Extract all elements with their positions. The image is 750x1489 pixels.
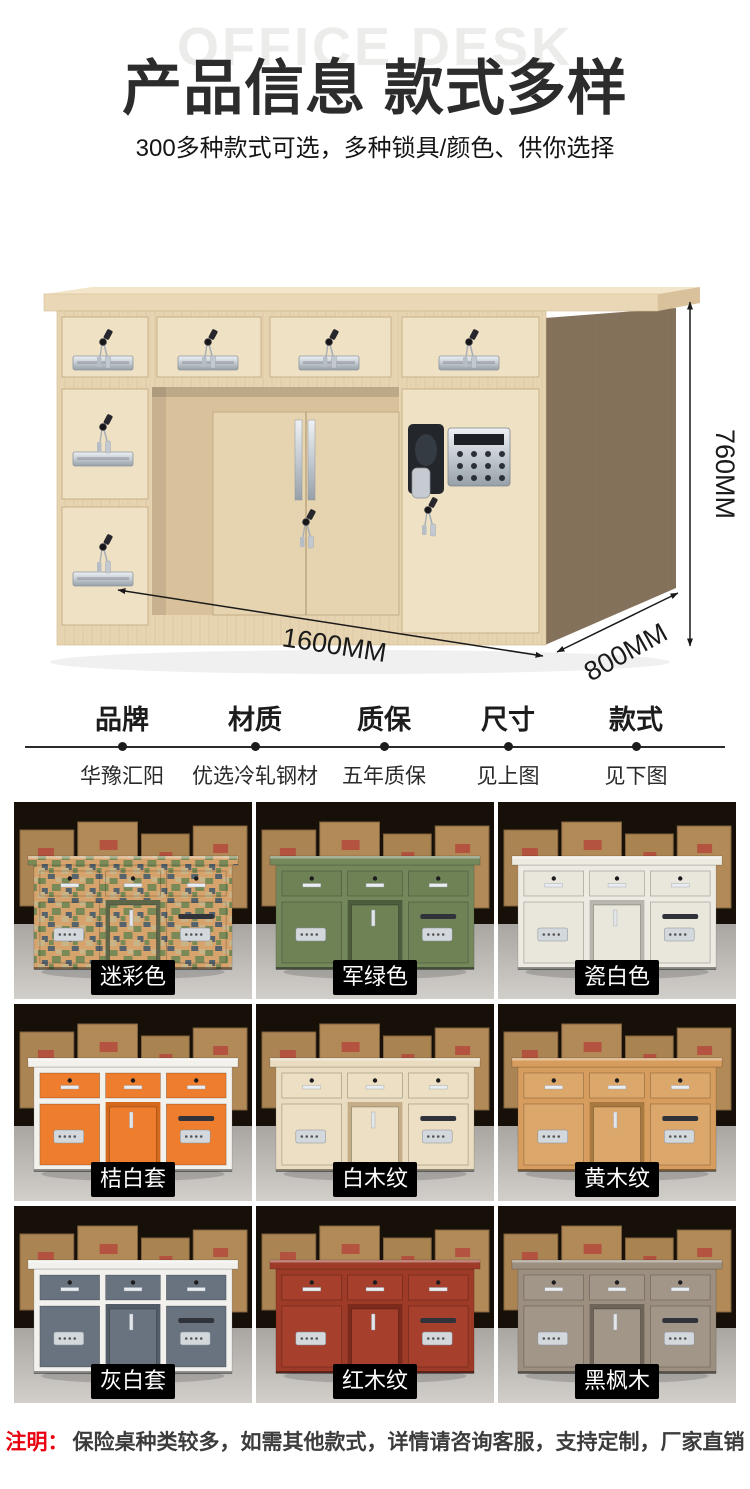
style-card-red-woodgrain: 红木纹	[256, 1206, 494, 1403]
style-label-badge: 桔白套	[91, 1162, 175, 1197]
spec-divider-dot	[118, 742, 127, 751]
style-card-yellow-woodgrain: 黄木纹	[498, 1004, 736, 1201]
style-card-porcelain-white: 瓷白色	[498, 802, 736, 999]
style-label-badge: 白木纹	[333, 1162, 417, 1197]
style-label: 桔白套	[100, 1166, 166, 1191]
spec-strip: 品牌 华豫汇阳 材质 优选冷轧钢材 质保 五年质保 尺寸 见上图 款式 见下图	[25, 700, 725, 795]
note-text: 保险桌种类较多，如需其他款式，详情请咨询客服，支持定制，厂家直销	[73, 1431, 745, 1454]
spec-style: 款式 见下图	[526, 700, 746, 790]
spec-divider-dot	[504, 742, 513, 751]
desk-illustration	[44, 287, 700, 645]
style-card-camouflage: 迷彩色	[14, 802, 252, 999]
product-detail-page: OFFICE DESK 产品信息 款式多样 300多种款式可选，多种锁具/颜色、…	[0, 0, 750, 1489]
style-card-orange-white: 桔白套	[14, 1004, 252, 1201]
page-subtitle: 300多种款式可选，多种锁具/颜色、供你选择	[0, 128, 750, 163]
dimension-depth-label: 800MM	[579, 617, 672, 687]
style-grid: 迷彩色 军绿色 瓷白色 桔白套 白木纹 黄木纹 灰白套 红木纹	[14, 802, 736, 1403]
product-hero-image: 760MM 1600MM 800MM	[0, 222, 750, 692]
style-card-white-woodgrain: 白木纹	[256, 1004, 494, 1201]
style-card-gray-white: 灰白套	[14, 1206, 252, 1403]
note-prefix: 注明：	[6, 1431, 69, 1454]
spec-divider-dot	[380, 742, 389, 751]
style-label-badge: 瓷白色	[575, 960, 659, 995]
page-title: 产品信息 款式多样	[0, 40, 750, 127]
style-card-black-maple: 黑枫木	[498, 1206, 736, 1403]
style-label-badge: 黑枫木	[575, 1364, 659, 1399]
style-label: 白木纹	[342, 1166, 408, 1191]
style-label: 迷彩色	[100, 964, 166, 989]
style-label: 黄木纹	[584, 1166, 650, 1191]
style-label: 灰白套	[100, 1368, 166, 1393]
style-label-badge: 黄木纹	[575, 1162, 659, 1197]
style-label: 瓷白色	[584, 964, 650, 989]
style-label-badge: 红木纹	[333, 1364, 417, 1399]
style-label: 黑枫木	[584, 1368, 650, 1393]
style-label: 军绿色	[342, 964, 408, 989]
spec-divider-dot	[632, 742, 641, 751]
style-card-army-green: 军绿色	[256, 802, 494, 999]
style-label-badge: 灰白套	[91, 1364, 175, 1399]
spec-divider-dot	[251, 742, 260, 751]
spec-value: 见下图	[526, 760, 746, 790]
style-label-badge: 军绿色	[333, 960, 417, 995]
spec-label: 款式	[526, 700, 746, 740]
style-label: 红木纹	[342, 1368, 408, 1393]
product-hero: 760MM 1600MM 800MM	[0, 222, 750, 692]
footer-note: 注明：保险桌种类较多，如需其他款式，详情请咨询客服，支持定制，厂家直销	[0, 1426, 750, 1456]
style-label-badge: 迷彩色	[91, 960, 175, 995]
dimension-height-label: 760MM	[710, 429, 740, 519]
